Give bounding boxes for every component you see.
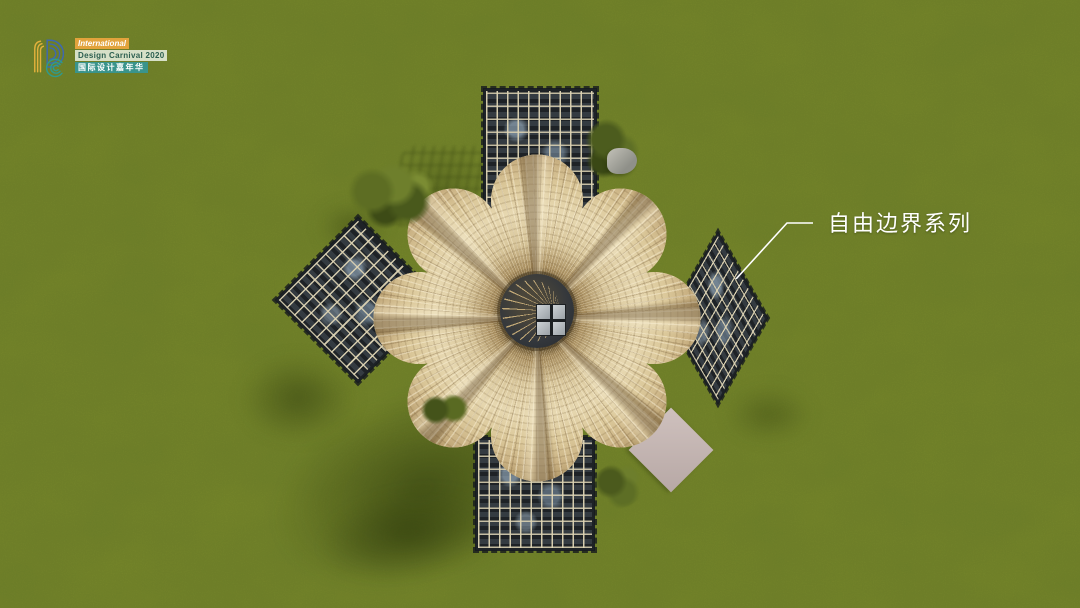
central-oculus	[500, 274, 574, 348]
idc-logo-mark-icon	[30, 33, 72, 80]
logo-text-design-carnival: Design Carnival 2020	[75, 50, 167, 61]
west-wing-shadow	[240, 356, 356, 440]
event-logo: International Design Carnival 2020 国际设计嘉…	[30, 33, 180, 83]
oculus-table-grid	[536, 304, 566, 336]
bushes-south	[593, 464, 643, 508]
logo-text-international: International	[75, 38, 129, 49]
architectural-rendering: 自由边界系列 International Design Carnival 202…	[0, 0, 1080, 608]
logo-text-chinese: 国际设计嘉年华	[75, 62, 148, 73]
series-label: 自由边界系列	[828, 206, 972, 238]
bushes-southwest	[420, 394, 472, 426]
east-wing-shadow	[726, 388, 812, 440]
